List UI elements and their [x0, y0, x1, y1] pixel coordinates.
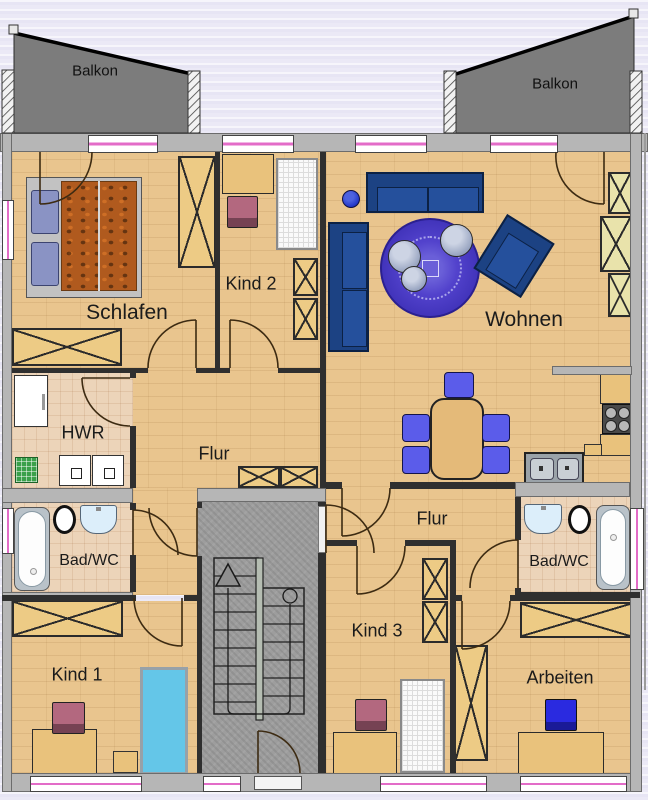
room-label-arbeiten: Arbeiten: [526, 668, 593, 689]
room-label-balkon-right: Balkon: [532, 76, 578, 93]
toilet: [53, 505, 76, 534]
bathtub-drain: [30, 568, 37, 575]
desk: [518, 732, 604, 775]
freezer: [14, 375, 48, 427]
washbasin: [80, 505, 117, 534]
desk-chair: [52, 702, 85, 734]
burner: [605, 407, 617, 419]
washing-machine: [59, 455, 91, 486]
cabinet: [422, 601, 448, 643]
window: [88, 135, 158, 153]
wall-kind1-top: [2, 595, 136, 601]
floor-corridor-left: [133, 488, 197, 595]
bathtub-basin: [18, 511, 46, 587]
wall-kind3-top: [405, 540, 450, 546]
double-bed: [26, 177, 142, 298]
washbasin: [524, 504, 562, 534]
window: [630, 508, 644, 590]
bathtub: [596, 505, 630, 590]
bathtub: [14, 507, 50, 591]
wall-kind3-top: [326, 540, 357, 546]
window: [203, 776, 241, 792]
sofa-cushion: [342, 232, 367, 289]
wall-wohnen-flur: [390, 482, 515, 489]
burner: [605, 420, 617, 432]
floor-plan: Balkon Balkon Schlafen Kind 2 Wohnen HWR…: [0, 0, 648, 800]
toilet: [568, 505, 591, 534]
room-label-flur-right: Flur: [417, 509, 448, 530]
cabinet: [293, 258, 318, 296]
stool: [342, 190, 360, 208]
pillow: [31, 242, 59, 286]
window: [380, 776, 487, 792]
wall-kind1-top: [184, 595, 197, 601]
cabinet: [293, 298, 318, 340]
wall-right: [630, 133, 642, 792]
room-label-bad-left: Bad/WC: [59, 552, 119, 570]
desk-chair: [355, 699, 387, 731]
floor-mat: [15, 457, 38, 483]
room-label-kind2: Kind 2: [225, 274, 276, 295]
floor-stairwell: [197, 488, 326, 773]
kitchen-counter: [600, 374, 632, 404]
neighbor-wall-line: [644, 133, 646, 690]
single-bed: [276, 158, 318, 250]
dining-chair: [444, 372, 474, 398]
stove: [602, 404, 632, 434]
shelf: [600, 216, 632, 272]
wardrobe: [520, 602, 632, 638]
burner: [618, 420, 630, 432]
dryer: [92, 455, 124, 486]
sink-drain: [565, 466, 569, 470]
kitchen-sink: [524, 452, 584, 484]
wall-band-hwr-bad: [2, 488, 133, 503]
room-label-hwr: HWR: [62, 423, 105, 444]
stairwell-door-opening: [318, 506, 326, 553]
sofa: [366, 172, 484, 213]
ottoman: [401, 266, 427, 292]
wall-flur-bad-right: [515, 497, 521, 540]
freezer-handle: [42, 394, 45, 410]
wall-band-stair-top: [197, 488, 326, 502]
wall-stair-left: [197, 502, 202, 508]
pillow: [31, 190, 59, 234]
wall-kind2-flur: [278, 368, 320, 373]
window: [520, 776, 627, 792]
room-label-flur-left: Flur: [199, 444, 230, 465]
wall-hwr-flur: [130, 426, 136, 488]
wall-kitchen-nook: [552, 366, 632, 375]
wall-hwr-flur: [130, 373, 136, 378]
wall-bad-left-corridor: [130, 503, 136, 510]
wall-schlafen-flur: [196, 368, 230, 373]
window: [355, 135, 427, 153]
wall-stair-left: [197, 556, 202, 773]
sink-drain: [539, 466, 543, 471]
dining-chair: [482, 446, 510, 474]
window: [30, 776, 142, 792]
shelf: [608, 273, 632, 317]
burner: [618, 407, 630, 419]
room-label-kind1: Kind 1: [51, 665, 102, 686]
desk-chair: [227, 196, 258, 228]
desk: [222, 154, 274, 194]
room-label-wohnen: Wohnen: [485, 308, 563, 332]
wall-wohnen-flur: [326, 482, 342, 489]
window: [222, 135, 294, 153]
window: [2, 200, 14, 260]
wardrobe: [12, 328, 122, 366]
kitchen-counter: [584, 444, 602, 456]
balcony-right: [444, 9, 642, 133]
sideboard: [238, 466, 280, 488]
armchair-seat: [485, 233, 539, 289]
sofa-cushion: [428, 187, 479, 212]
wall-central: [320, 152, 326, 488]
desk: [32, 729, 97, 774]
wardrobe: [454, 645, 488, 761]
wall-schlafen-flur: [12, 368, 148, 373]
dining-chair: [482, 414, 510, 442]
room-label-balkon-left: Balkon: [72, 63, 118, 80]
sideboard: [280, 466, 318, 488]
sofa-cushion: [342, 290, 367, 347]
wardrobe: [178, 156, 216, 268]
wall-schlafen-kind2: [215, 152, 220, 368]
entrance-threshold: [254, 776, 302, 790]
dining-chair: [402, 446, 430, 474]
wall-bad-left-corridor: [130, 555, 136, 592]
room-label-schlafen: Schlafen: [86, 301, 168, 325]
bathtub-basin: [600, 509, 626, 586]
wall-arbeiten-top: [510, 595, 630, 601]
wall-arbeiten-top: [450, 595, 462, 601]
kitchen-counter: [600, 434, 632, 456]
wall-stair-right: [318, 553, 326, 773]
room-label-bad-right: Bad/WC: [529, 553, 589, 571]
washer-door: [71, 468, 82, 479]
office-chair: [545, 699, 577, 731]
single-bed: [400, 679, 445, 773]
shelf: [608, 172, 632, 214]
basin-tap: [541, 506, 546, 510]
window: [490, 135, 558, 153]
duvet-split: [98, 181, 100, 291]
cabinet: [422, 558, 448, 600]
bathtub-drain: [610, 534, 617, 541]
dining-table: [430, 398, 484, 480]
basin-tap: [96, 507, 101, 511]
dining-chair: [402, 414, 430, 442]
sofa: [328, 222, 369, 352]
nightstand: [113, 751, 138, 773]
wall-kind3-right: [450, 540, 456, 773]
single-bed-cyan: [140, 667, 188, 775]
sofa-cushion: [377, 187, 428, 212]
ottoman: [440, 224, 473, 257]
room-label-kind3: Kind 3: [351, 621, 402, 642]
window: [2, 508, 14, 554]
wardrobe: [12, 600, 123, 637]
wall-band-bad-right-top: [515, 482, 630, 497]
desk: [333, 732, 397, 775]
dryer-door: [104, 468, 115, 479]
